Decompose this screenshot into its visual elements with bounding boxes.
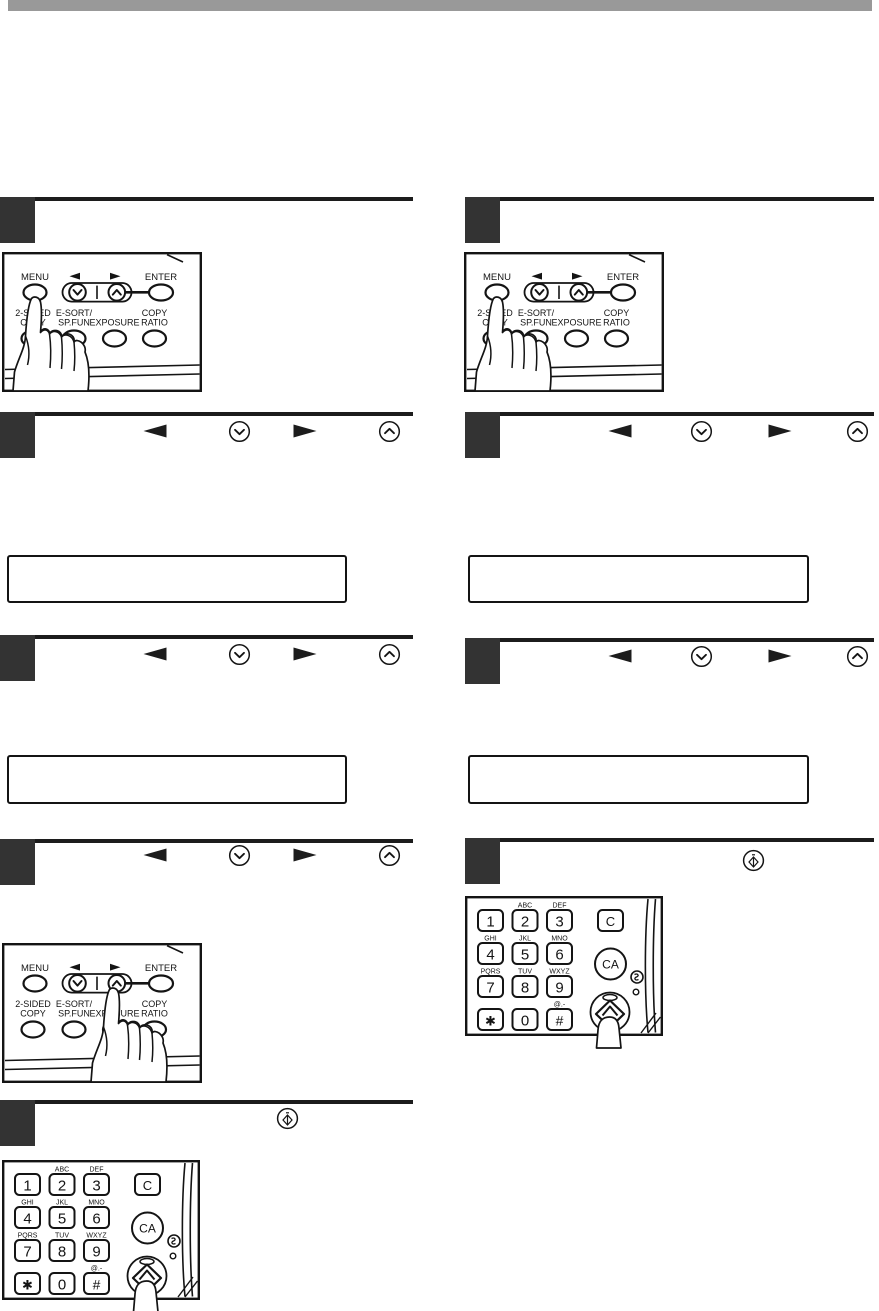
step-number-box: [0, 635, 35, 681]
copy-ratio-button: [605, 331, 628, 347]
letters-mno: MNO: [551, 936, 568, 943]
enter-label: ENTER: [145, 272, 177, 283]
hash-key-label: #: [556, 1013, 564, 1029]
right-arrow-icon: [768, 424, 792, 438]
down-arrow-key-icon: [228, 420, 251, 443]
exposure-button: [565, 331, 588, 347]
key-8-label: 8: [58, 1244, 66, 1261]
step-number-box: [465, 638, 500, 684]
step-rule: [0, 635, 413, 639]
down-arrow-key-icon: [228, 844, 251, 867]
key-6-label: 6: [555, 947, 563, 964]
start-key-icon: [742, 849, 765, 872]
step-rule: [0, 1100, 413, 1104]
clear-all-key-label: CA: [602, 958, 619, 972]
key-5-label: 5: [521, 947, 529, 964]
e-sort-label-1: E-SORT/: [56, 999, 93, 1009]
step-number-box: [0, 412, 35, 458]
menu-label: MENU: [21, 272, 49, 283]
letters-jkl: JKL: [519, 936, 531, 943]
key-4-label: 4: [23, 1211, 31, 1228]
pointing-finger-illustration: [597, 1017, 622, 1048]
down-arrow-key-icon: [690, 420, 713, 443]
e-sort-label-2: SP.FUN: [58, 1009, 90, 1019]
right-arrow-icon: [293, 424, 317, 438]
letters-mno: MNO: [88, 1200, 105, 1207]
indicator-led: [170, 1253, 176, 1259]
key-7-label: 7: [23, 1244, 31, 1261]
copy-ratio-label-2: RATIO: [141, 1009, 168, 1019]
step-rule: [465, 197, 874, 201]
start-key-icon: [276, 1107, 299, 1130]
letters-tuv: TUV: [518, 969, 532, 976]
menu-label: MENU: [21, 963, 49, 974]
enter-label: ENTER: [607, 272, 639, 283]
down-arrow-key-button: [531, 284, 548, 301]
enter-button: [149, 976, 173, 992]
step-rule: [0, 197, 413, 201]
step-number-box: [465, 838, 500, 884]
key-3-label: 3: [92, 1178, 100, 1195]
star-key-label: ✱: [485, 1014, 496, 1029]
up-arrow-key-button: [109, 284, 126, 301]
down-arrow-key-button: [69, 284, 86, 301]
step-rule: [0, 412, 413, 416]
two-sided-copy-label-1: 2-SIDED: [15, 999, 51, 1009]
key-4-label: 4: [486, 947, 494, 964]
letters-def: DEF: [553, 903, 567, 910]
illustration-press-start: ABC DEF 1 2 3 C GHI JKL MNO 4 5 6 CA PQR…: [465, 896, 663, 1048]
menu-label: MENU: [483, 272, 511, 283]
pointing-finger-illustration: [134, 1281, 159, 1311]
left-arrow-icon: [608, 424, 632, 438]
up-arrow-key-icon: [378, 844, 401, 867]
up-arrow-key-icon: [378, 643, 401, 666]
letters-at: @.-: [91, 1266, 103, 1273]
letters-wxyz: WXYZ: [549, 969, 570, 976]
letters-abc: ABC: [518, 903, 532, 910]
step-number-box: [0, 839, 35, 885]
lcd-display-box: [7, 555, 347, 603]
letters-def: DEF: [90, 1167, 104, 1174]
letters-abc: ABC: [55, 1167, 69, 1174]
key-1-label: 1: [486, 914, 494, 931]
key-2-label: 2: [58, 1178, 66, 1195]
e-sort-button: [63, 1022, 86, 1038]
enter-button: [149, 285, 173, 301]
two-sided-copy-label-2: COPY: [20, 1009, 46, 1019]
letters-wxyz: WXYZ: [86, 1233, 107, 1240]
e-sort-label-2: SP.FUN: [520, 318, 552, 328]
manual-page: MENU ENTER 2-SIDED COPY E-SORT/ SP.FUN E…: [0, 0, 879, 1311]
copy-ratio-button: [143, 331, 166, 347]
star-key-label: ✱: [22, 1278, 33, 1293]
left-arrow-icon: [608, 649, 632, 663]
e-sort-label-2: SP.FUN: [58, 318, 90, 328]
e-sort-label-1: E-SORT/: [518, 308, 555, 318]
copy-ratio-label-2: RATIO: [603, 318, 630, 328]
up-arrow-key-icon: [846, 420, 869, 443]
step-rule: [0, 839, 413, 843]
two-sided-copy-button: [22, 1022, 45, 1038]
e-sort-label-1: E-SORT/: [56, 308, 93, 318]
copy-ratio-label-2: RATIO: [141, 318, 168, 328]
letters-tuv: TUV: [55, 1233, 69, 1240]
letters-pqrs: PQRS: [18, 1233, 38, 1240]
control-panel-illustration: MENU ENTER 2-SIDED COPY E-SORT/ SP.FUN E…: [464, 252, 664, 392]
indicator-led: [633, 989, 639, 995]
key-0-label: 0: [58, 1277, 66, 1294]
step-rule: [465, 838, 874, 842]
key-5-label: 5: [58, 1211, 66, 1228]
letters-at: @.-: [554, 1002, 566, 1009]
letters-pqrs: PQRS: [481, 969, 501, 976]
key-6-label: 6: [92, 1211, 100, 1228]
copy-ratio-label-1: COPY: [142, 308, 168, 318]
lcd-display-box: [468, 755, 809, 804]
letters-jkl: JKL: [56, 1200, 68, 1207]
numeric-keypad-illustration: ABC DEF 1 2 3 C GHI JKL MNO 4 5 6 CA PQR…: [2, 1160, 200, 1311]
key-3-label: 3: [555, 914, 563, 931]
hash-key-label: #: [93, 1277, 101, 1293]
numeric-keypad-illustration: ABC DEF 1 2 3 C GHI JKL MNO 4 5 6 CA PQR…: [465, 896, 663, 1048]
illustration-press-start: ABC DEF 1 2 3 C GHI JKL MNO 4 5 6 CA PQR…: [2, 1160, 200, 1311]
exposure-label: EXPOSURE: [89, 318, 139, 328]
key-2-label: 2: [521, 914, 529, 931]
page-top-bar: [8, 0, 872, 11]
key-0-label: 0: [521, 1013, 529, 1030]
exposure-button: [103, 331, 126, 347]
key-9-label: 9: [92, 1244, 100, 1261]
letters-ghi: GHI: [21, 1200, 34, 1207]
key-7-label: 7: [486, 980, 494, 997]
clear-all-key-label: CA: [139, 1222, 156, 1236]
left-arrow-icon: [143, 424, 167, 438]
right-arrow-icon: [293, 647, 317, 661]
key-1-label: 1: [23, 1178, 31, 1195]
copy-ratio-label-1: COPY: [604, 308, 630, 318]
step-rule: [465, 412, 874, 416]
step-number-box: [0, 1100, 35, 1146]
up-arrow-key-button: [571, 284, 588, 301]
clear-key-label: C: [606, 914, 615, 929]
up-arrow-key-icon: [378, 420, 401, 443]
down-arrow-key-icon: [690, 645, 713, 668]
right-arrow-icon: [293, 848, 317, 862]
step-rule: [465, 638, 874, 642]
control-panel-illustration: MENU ENTER 2-SIDED COPY E-SORT/ SP.FUN E…: [2, 943, 202, 1083]
up-arrow-key-icon: [846, 645, 869, 668]
menu-button: [24, 976, 47, 992]
copy-ratio-label-1: COPY: [142, 999, 168, 1009]
clear-key-label: C: [143, 1178, 152, 1193]
illustration-press-menu: MENU ENTER 2-SIDED COPY E-SORT/ SP.FUN E…: [2, 252, 202, 392]
left-arrow-icon: [143, 848, 167, 862]
key-9-label: 9: [555, 980, 563, 997]
down-arrow-key-icon: [228, 643, 251, 666]
step-number-box: [465, 197, 500, 243]
step-number-box: [465, 412, 500, 458]
exposure-label: EXPOSURE: [551, 318, 601, 328]
enter-button: [611, 285, 635, 301]
left-arrow-icon: [143, 647, 167, 661]
down-arrow-key-button: [69, 975, 86, 992]
enter-label: ENTER: [145, 963, 177, 974]
letters-ghi: GHI: [484, 936, 497, 943]
lcd-display-box: [468, 555, 809, 603]
illustration-press-menu: MENU ENTER 2-SIDED COPY E-SORT/ SP.FUN E…: [464, 252, 664, 392]
control-panel-illustration: MENU ENTER 2-SIDED COPY E-SORT/ SP.FUN E…: [2, 252, 202, 392]
right-arrow-icon: [768, 649, 792, 663]
illustration-press-right-key: MENU ENTER 2-SIDED COPY E-SORT/ SP.FUN E…: [2, 943, 202, 1083]
key-8-label: 8: [521, 980, 529, 997]
step-number-box: [0, 197, 35, 243]
lcd-display-box: [7, 755, 347, 804]
